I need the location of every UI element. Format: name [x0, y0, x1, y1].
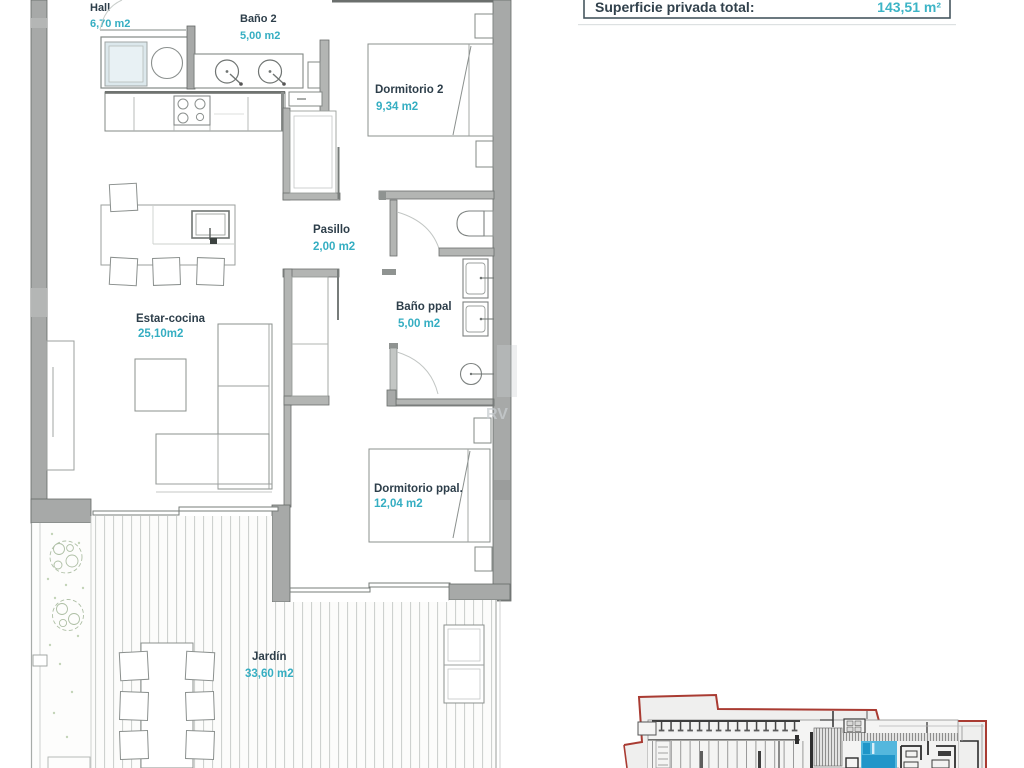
svg-text:5,00 m2: 5,00 m2 [240, 30, 280, 42]
svg-text:5,00 m2: 5,00 m2 [398, 318, 440, 330]
svg-text:12,04 m2: 12,04 m2 [374, 498, 423, 510]
svg-text:33,60 m2: 33,60 m2 [245, 668, 294, 680]
svg-text:9,34 m2: 9,34 m2 [376, 101, 418, 113]
svg-text:Estar-cocina: Estar-cocina [136, 313, 206, 325]
svg-text:143,51 m²: 143,51 m² [877, 0, 941, 15]
svg-text:Baño 2: Baño 2 [240, 13, 277, 25]
svg-text:Pasillo: Pasillo [313, 224, 350, 236]
svg-text:2,00 m2: 2,00 m2 [313, 241, 355, 253]
svg-text:RV: RV [486, 406, 508, 423]
svg-text:25,10m2: 25,10m2 [138, 328, 183, 340]
svg-text:Baño ppal: Baño ppal [396, 301, 452, 313]
svg-text:6,70 m2: 6,70 m2 [90, 18, 130, 30]
svg-text:Dormitorio 2: Dormitorio 2 [375, 84, 443, 96]
svg-text:Superficie privada total:: Superficie privada total: [595, 0, 754, 15]
svg-text:Jardín: Jardín [252, 651, 287, 663]
svg-text:Dormitorio ppal.: Dormitorio ppal. [374, 483, 463, 495]
